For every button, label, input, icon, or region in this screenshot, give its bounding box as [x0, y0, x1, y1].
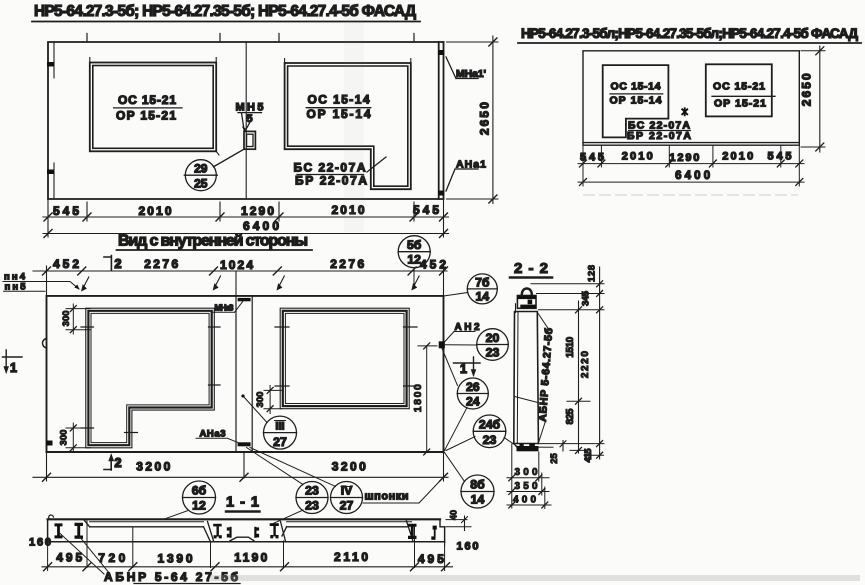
svg-text:23: 23 — [305, 484, 319, 498]
svg-text:27: 27 — [340, 499, 354, 513]
svg-text:2010: 2010 — [722, 151, 753, 163]
svg-text:ОС 15-21: ОС 15-21 — [118, 93, 176, 107]
svg-text:400: 400 — [513, 494, 536, 505]
svg-text:2650: 2650 — [800, 73, 814, 106]
svg-text:БР 22-07А: БР 22-07А — [627, 130, 691, 142]
svg-text:545: 545 — [53, 204, 79, 218]
svg-text:300: 300 — [59, 430, 70, 446]
svg-text:АБНР 5-64.27-5б: АБНР 5-64.27-5б — [537, 327, 556, 422]
svg-text:545: 545 — [580, 152, 604, 164]
svg-text:452: 452 — [53, 257, 79, 271]
svg-text:7б: 7б — [475, 276, 490, 290]
svg-text:20: 20 — [486, 331, 500, 345]
svg-text:128: 128 — [587, 265, 598, 282]
svg-text:23: 23 — [483, 433, 497, 447]
svg-text:1510: 1510 — [565, 336, 576, 357]
svg-text:1190: 1190 — [234, 551, 267, 565]
svg-text:825: 825 — [565, 408, 576, 424]
svg-text:1024: 1024 — [220, 258, 253, 272]
svg-text:160: 160 — [457, 541, 479, 553]
svg-text:12: 12 — [407, 253, 421, 267]
svg-text:12: 12 — [192, 499, 206, 513]
svg-text:МН5: МН5 — [236, 102, 264, 114]
svg-text:495: 495 — [56, 551, 82, 565]
svg-text:6б: 6б — [192, 484, 207, 498]
svg-text:24б: 24б — [479, 418, 501, 432]
svg-text:ОР 15-14: ОР 15-14 — [610, 95, 662, 107]
svg-text:1290: 1290 — [669, 152, 699, 164]
svg-text:IV: IV — [341, 484, 353, 498]
svg-text:345: 345 — [581, 290, 592, 306]
svg-text:160: 160 — [29, 537, 51, 549]
svg-text:2010: 2010 — [622, 151, 653, 163]
svg-text:23: 23 — [486, 345, 500, 359]
svg-text:24: 24 — [466, 395, 480, 409]
svg-text:300: 300 — [255, 392, 266, 408]
svg-text:40: 40 — [449, 510, 459, 520]
svg-text:III: III — [275, 421, 284, 433]
svg-text:2: 2 — [115, 257, 122, 271]
svg-text:26: 26 — [466, 380, 480, 394]
svg-text:6400: 6400 — [243, 219, 279, 233]
svg-text:НР5-64.27.3-5бл;НР5-64.27.35-5: НР5-64.27.3-5бл;НР5-64.27.35-5бл;НР5-64.… — [521, 26, 858, 41]
svg-text:415: 415 — [583, 448, 594, 463]
svg-text:3200: 3200 — [136, 460, 170, 474]
svg-text:Вид с внутренней стороны: Вид с внутренней стороны — [118, 233, 308, 250]
svg-text:5б: 5б — [407, 238, 422, 252]
svg-text:545: 545 — [768, 151, 792, 163]
svg-text:350: 350 — [515, 481, 538, 492]
svg-text:2: 2 — [115, 456, 122, 470]
svg-text:МНа3: МНа3 — [215, 303, 234, 313]
svg-text:2276: 2276 — [144, 257, 178, 271]
svg-text:27: 27 — [273, 435, 287, 449]
svg-text:495: 495 — [418, 552, 444, 566]
svg-text:25: 25 — [194, 177, 208, 191]
svg-text:ОС 15-21: ОС 15-21 — [713, 81, 765, 93]
svg-text:29: 29 — [194, 162, 208, 176]
svg-text:25: 25 — [549, 453, 560, 464]
svg-text:ОР 15-21: ОР 15-21 — [714, 98, 766, 110]
svg-text:ОР 15-21: ОР 15-21 — [116, 109, 176, 123]
svg-text:720: 720 — [98, 551, 125, 565]
svg-text:2110: 2110 — [334, 550, 368, 564]
svg-text:3200: 3200 — [332, 460, 366, 474]
svg-text:1800: 1800 — [412, 384, 424, 412]
svg-text:545: 545 — [413, 203, 439, 217]
svg-text:14: 14 — [471, 493, 485, 507]
svg-text:2276: 2276 — [330, 257, 364, 271]
svg-text:1390: 1390 — [158, 552, 193, 566]
svg-text:шпонки: шпонки — [365, 491, 409, 503]
svg-text:2010: 2010 — [139, 204, 172, 218]
svg-text:300: 300 — [61, 310, 72, 326]
svg-text:14: 14 — [475, 290, 489, 304]
svg-text:ОС 15-14: ОС 15-14 — [611, 81, 661, 93]
svg-text:300: 300 — [515, 467, 538, 478]
svg-text:6400: 6400 — [675, 170, 710, 182]
svg-text:2-2: 2-2 — [514, 260, 548, 277]
svg-text:8б: 8б — [470, 478, 485, 492]
svg-text:1: 1 — [10, 361, 17, 375]
svg-text:2220: 2220 — [580, 351, 591, 378]
svg-text:2650: 2650 — [478, 102, 492, 135]
svg-text:1: 1 — [460, 362, 467, 376]
svg-text:1-1: 1-1 — [226, 495, 259, 511]
svg-text:23: 23 — [305, 499, 319, 513]
svg-text:1290: 1290 — [241, 204, 274, 218]
